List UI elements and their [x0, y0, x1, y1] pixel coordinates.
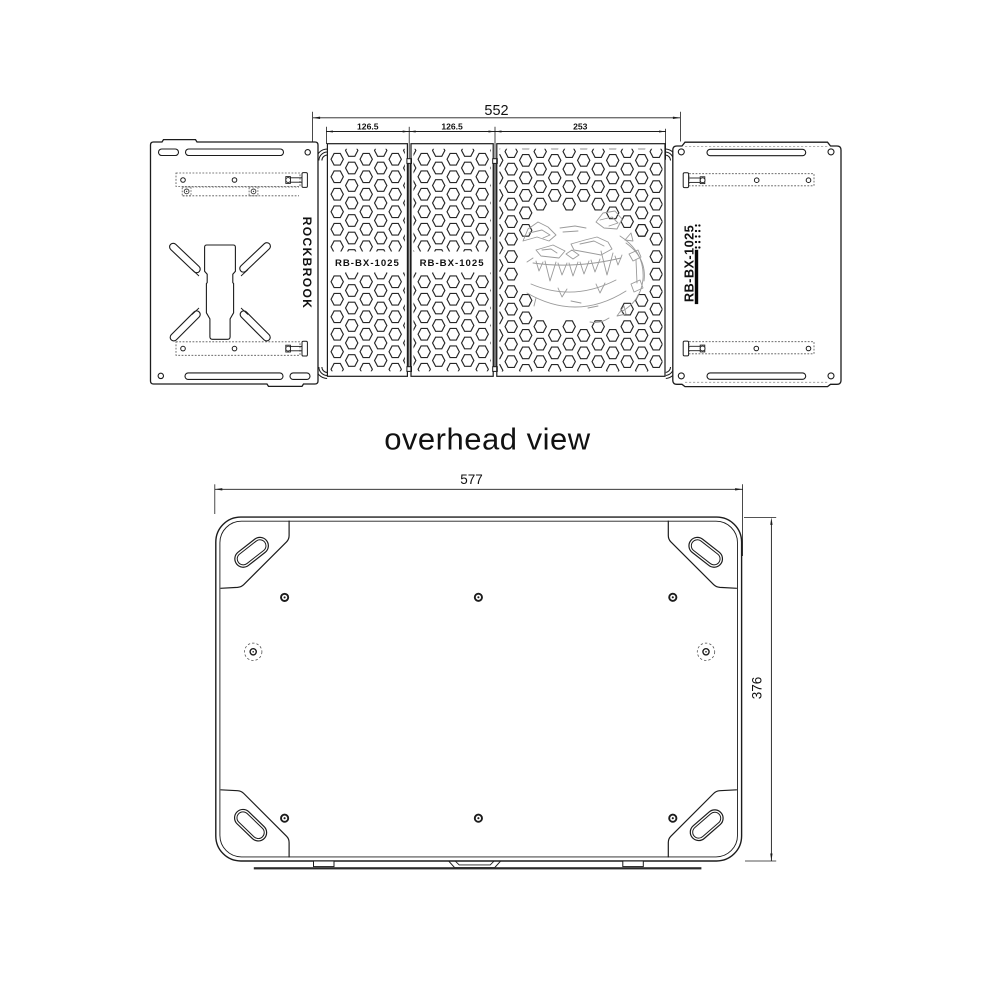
svg-text:577: 577 — [460, 472, 483, 487]
svg-text:126.5: 126.5 — [357, 121, 379, 131]
svg-text:RB-BX-1025: RB-BX-1025 — [420, 258, 485, 269]
svg-text:RB-BX-1025: RB-BX-1025 — [681, 225, 696, 302]
svg-text:overhead view: overhead view — [384, 422, 591, 457]
svg-text:552: 552 — [484, 103, 508, 119]
svg-text:RB-BX-1025: RB-BX-1025 — [335, 258, 400, 269]
svg-text:126.5: 126.5 — [441, 121, 463, 131]
svg-text:ROCKBROOK: ROCKBROOK — [300, 217, 314, 310]
svg-text:376: 376 — [750, 677, 765, 700]
svg-text:253: 253 — [573, 121, 588, 131]
